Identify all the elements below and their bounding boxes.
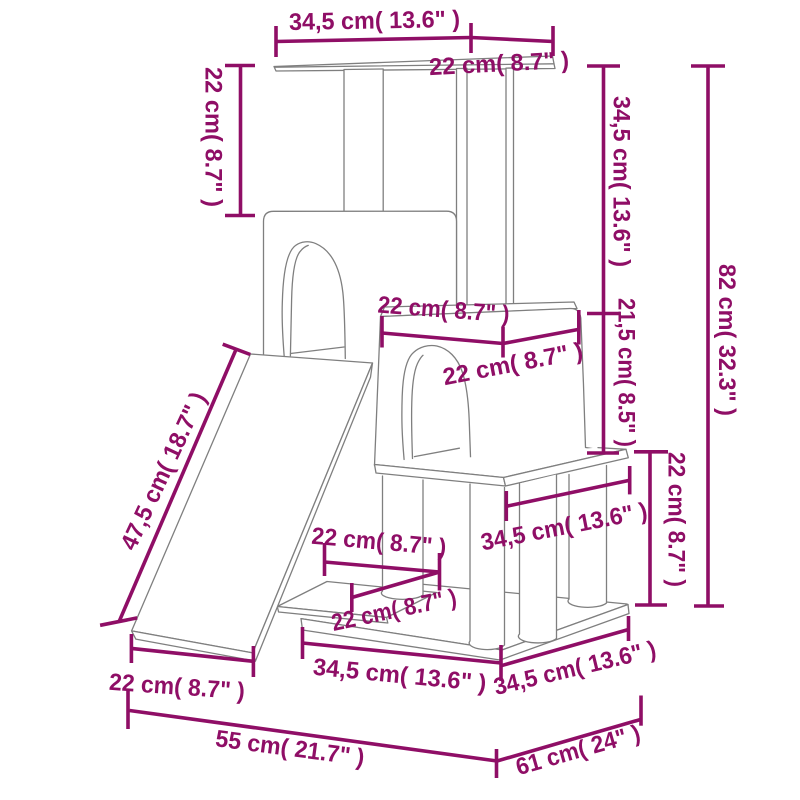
svg-text:34,5 cm( 13.6" ): 34,5 cm( 13.6" ) — [289, 6, 460, 36]
svg-text:61 cm( 24" ): 61 cm( 24" ) — [513, 720, 643, 781]
svg-text:34,5 cm( 13.6" ): 34,5 cm( 13.6" ) — [608, 96, 635, 267]
svg-text:82 cm( 32.3" ): 82 cm( 32.3" ) — [713, 264, 740, 416]
svg-text:22 cm( 8.7" ): 22 cm( 8.7" ) — [311, 523, 448, 562]
svg-text:22 cm( 8.7" ): 22 cm( 8.7" ) — [428, 47, 569, 81]
svg-text:21,5 cm( 8.5" ): 21,5 cm( 8.5" ) — [613, 298, 640, 447]
svg-text:22 cm( 8.7" ): 22 cm( 8.7" ) — [200, 67, 227, 207]
svg-text:22 cm( 8.7" ): 22 cm( 8.7" ) — [663, 452, 690, 587]
